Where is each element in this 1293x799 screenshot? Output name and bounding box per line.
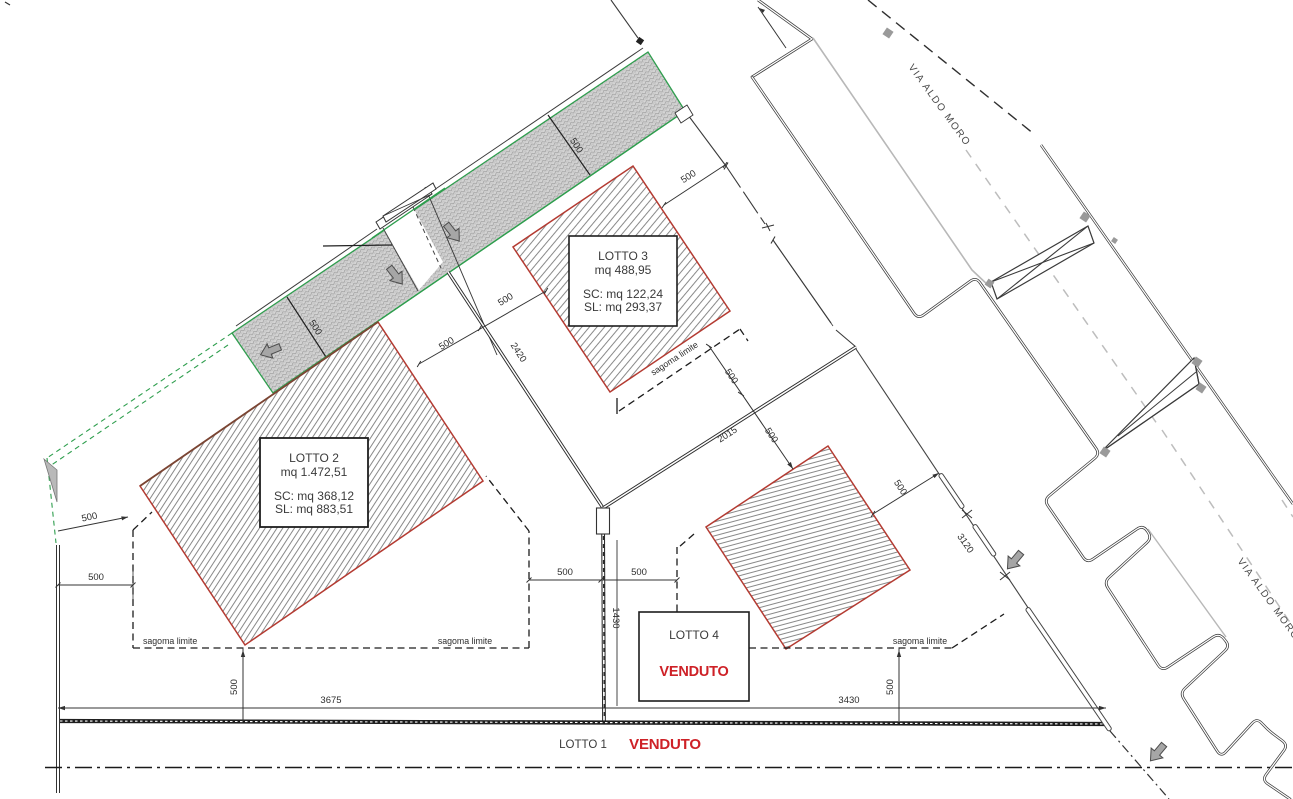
svg-text:LOTTO 3: LOTTO 3 [598, 249, 648, 263]
svg-text:500: 500 [631, 567, 647, 578]
svg-text:SL: mq 883,51: SL: mq 883,51 [275, 502, 353, 516]
svg-text:1430: 1430 [610, 607, 621, 628]
svg-text:500: 500 [229, 679, 240, 695]
svg-text:VENDUTO: VENDUTO [659, 664, 728, 680]
svg-text:LOTTO 2: LOTTO 2 [289, 451, 339, 465]
svg-text:3675: 3675 [320, 695, 341, 706]
svg-text:sagoma limite: sagoma limite [893, 636, 947, 646]
svg-text:SL: mq 293,37: SL: mq 293,37 [584, 300, 662, 314]
svg-text:LOTTO 1: LOTTO 1 [559, 739, 607, 751]
svg-text:SC: mq 122,24: SC: mq 122,24 [583, 287, 663, 301]
svg-text:500: 500 [557, 567, 573, 578]
svg-text:VENDUTO: VENDUTO [629, 736, 701, 753]
svg-text:3430: 3430 [838, 695, 859, 706]
svg-text:SC: mq 368,12: SC: mq 368,12 [274, 489, 354, 503]
svg-text:LOTTO 4: LOTTO 4 [669, 628, 719, 642]
svg-text:500: 500 [88, 572, 104, 583]
svg-text:sagoma limite: sagoma limite [438, 636, 492, 646]
svg-text:mq 1.472,51: mq 1.472,51 [281, 465, 348, 479]
svg-text:mq 488,95: mq 488,95 [595, 263, 652, 277]
svg-text:sagoma limite: sagoma limite [143, 636, 197, 646]
svg-text:500: 500 [885, 679, 896, 695]
